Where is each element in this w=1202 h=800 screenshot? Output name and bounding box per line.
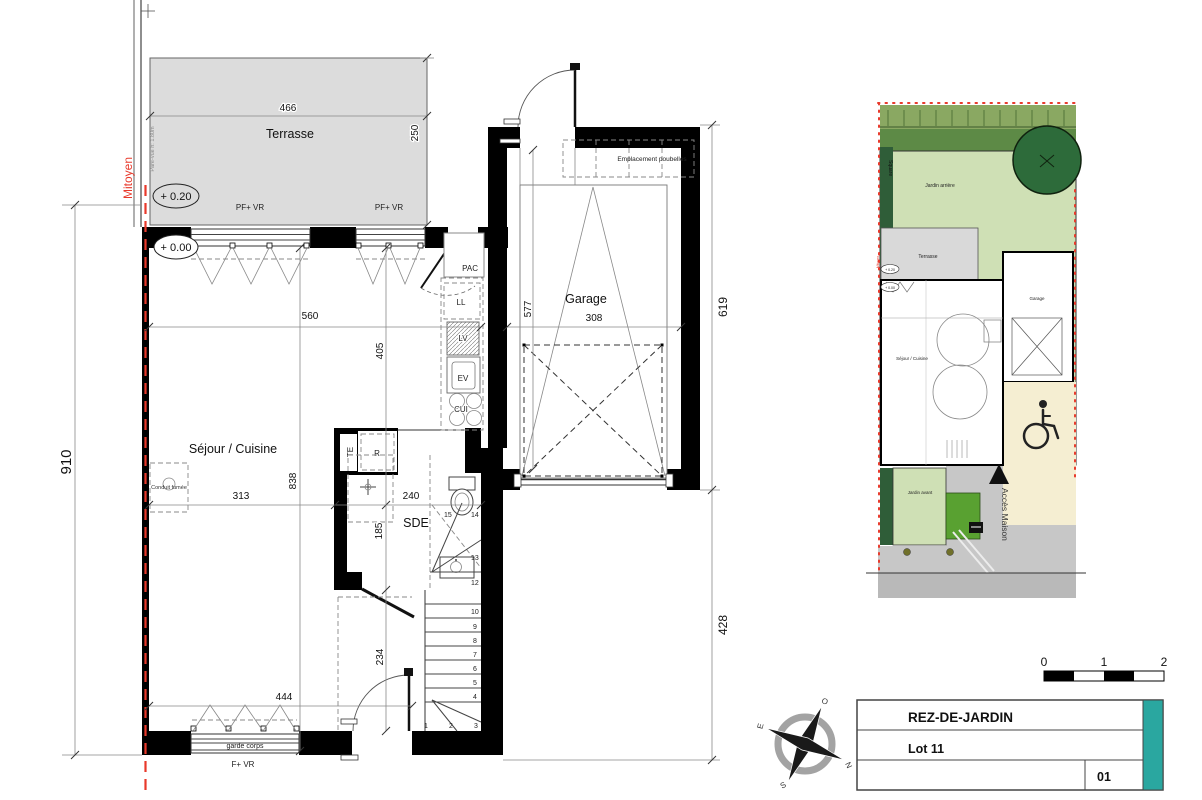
title-sheet-number: 01 <box>1097 770 1111 784</box>
mini-sejour-label: Séjour / Cuisine <box>896 356 928 361</box>
dim-sde-width: 240 <box>403 491 420 502</box>
kitchen-fixtures: PAC LL LV EV CUI <box>441 233 484 430</box>
sde-door <box>362 589 414 617</box>
access-label: Accès Maison <box>1000 488 1010 541</box>
scale-1: 1 <box>1101 655 1108 669</box>
pf-vr-label-left: PF+ VR <box>236 203 264 212</box>
scale-0: 0 <box>1041 655 1048 669</box>
step-3: 3 <box>474 723 478 730</box>
f-vr-label: F+ VR <box>232 760 255 769</box>
garde-corps-label: garde corps <box>227 743 264 750</box>
sejour-label: Séjour / Cuisine <box>189 442 277 456</box>
title-level: REZ-DE-JARDIN <box>908 710 1013 725</box>
dim-garage-side: 619 <box>716 297 730 317</box>
tree <box>1013 126 1081 194</box>
garage-interior: Emplacement poubelles Garage <box>514 140 694 487</box>
step-6: 6 <box>473 666 477 673</box>
dim-hall-depth: 234 <box>375 648 386 665</box>
conduit-fumee-label: Conduit fumée <box>151 485 187 491</box>
washer-label: LL <box>457 298 466 307</box>
compass-west: O <box>820 696 829 707</box>
step-14: 14 <box>471 512 479 519</box>
mitoyen-label: Mitoyen <box>121 157 135 199</box>
level-000: + 0.00 <box>161 242 192 254</box>
te-r-niches: TE R <box>340 431 397 472</box>
mini-level-020: + 0.20 <box>885 268 895 272</box>
mini-house <box>881 280 1003 465</box>
title-block: REZ-DE-JARDIN Lot 11 01 <box>857 700 1163 790</box>
cooktop-label: CUI <box>454 405 468 414</box>
title-lot: Lot 11 <box>908 742 944 756</box>
terrace-slab <box>150 58 427 225</box>
dim-overall-depth: 910 <box>58 449 75 474</box>
compass-south: S <box>779 780 788 790</box>
toilet-tank <box>449 477 475 490</box>
mini-level-000: + 0.00 <box>885 286 895 290</box>
terrace-area: Terrasse <box>150 58 427 225</box>
street-label: Square <box>887 160 893 176</box>
street-paving <box>878 573 1076 598</box>
rear-garden-label: Jardin arrière <box>925 183 955 189</box>
step-12: 12 <box>471 580 479 587</box>
property-line: Mitoyen Pare-vue h: 1.80m <box>121 126 156 792</box>
scale-2: 2 <box>1161 655 1168 669</box>
compass-north: N <box>843 761 854 770</box>
front-garden-label: Jardin avant <box>908 490 933 495</box>
pac-label: PAC <box>462 264 478 273</box>
south-window: garde corps F+ VR <box>191 705 299 769</box>
dim-right-lower: 428 <box>716 615 730 635</box>
accent-bar <box>1143 700 1163 790</box>
dim-bottom-width: 444 <box>276 692 293 703</box>
step-9: 9 <box>473 624 477 631</box>
sde-label: SDE <box>403 516 429 530</box>
electrical-panel-label: TE <box>346 447 355 457</box>
dim-garage-depth: 577 <box>523 300 534 317</box>
front-garden <box>893 468 946 545</box>
dim-sde-depth: 185 <box>374 522 385 539</box>
dim-garage-width: 308 <box>586 313 603 324</box>
step-1: 1 <box>424 723 428 730</box>
dim-kitchen-depth: 405 <box>375 342 386 359</box>
level-020: + 0.20 <box>161 191 192 203</box>
step-5: 5 <box>473 680 477 687</box>
terrace-label: Terrasse <box>266 127 314 141</box>
garage-right-wall <box>681 127 700 490</box>
architectural-drawing: Terrasse <box>0 0 1202 800</box>
dim-terrace-width: 466 <box>280 103 297 114</box>
scale-bar: 0 1 2 <box>1041 655 1168 681</box>
step-15: 15 <box>444 512 452 519</box>
dim-sejour-lower-width: 313 <box>233 491 250 502</box>
dim-terrace-depth: 250 <box>410 124 421 141</box>
step-4: 4 <box>473 694 477 701</box>
bin-storage-label: Emplacement poubelles <box>617 156 687 163</box>
sink-label: EV <box>458 374 469 383</box>
garage-left-wall <box>488 127 507 448</box>
floor-plan-canvas: Terrasse <box>0 0 1202 800</box>
step-8: 8 <box>473 638 477 645</box>
garage-label: Garage <box>565 292 607 306</box>
step-7: 7 <box>473 652 477 659</box>
pf-vr-label-right: PF+ VR <box>375 203 403 212</box>
step-13: 13 <box>471 555 479 562</box>
site-plan: Square Jardin arrière Terrasse Mitoyen G… <box>866 103 1086 598</box>
mini-garage-label: Garage <box>1029 296 1045 301</box>
dishwasher-label: LV <box>458 334 468 343</box>
dim-sejour-width: 560 <box>302 311 319 322</box>
step-2: 2 <box>449 723 453 730</box>
vanity <box>440 557 474 578</box>
fridge-label: R <box>374 449 380 458</box>
staircase: 1 2 3 4 5 6 7 8 9 10 12 13 14 15 <box>424 503 481 731</box>
mini-garage <box>1003 252 1073 382</box>
compass-rose: O E N S <box>755 696 853 790</box>
compass-east: E <box>755 722 765 729</box>
mini-terrace-label: Terrasse <box>918 254 937 260</box>
step-10: 10 <box>471 609 479 616</box>
dim-sejour-depth: 838 <box>288 472 299 489</box>
main-floor-plan: Terrasse <box>58 0 730 792</box>
pare-vue-label: Pare-vue h: 1.80m <box>150 126 156 172</box>
